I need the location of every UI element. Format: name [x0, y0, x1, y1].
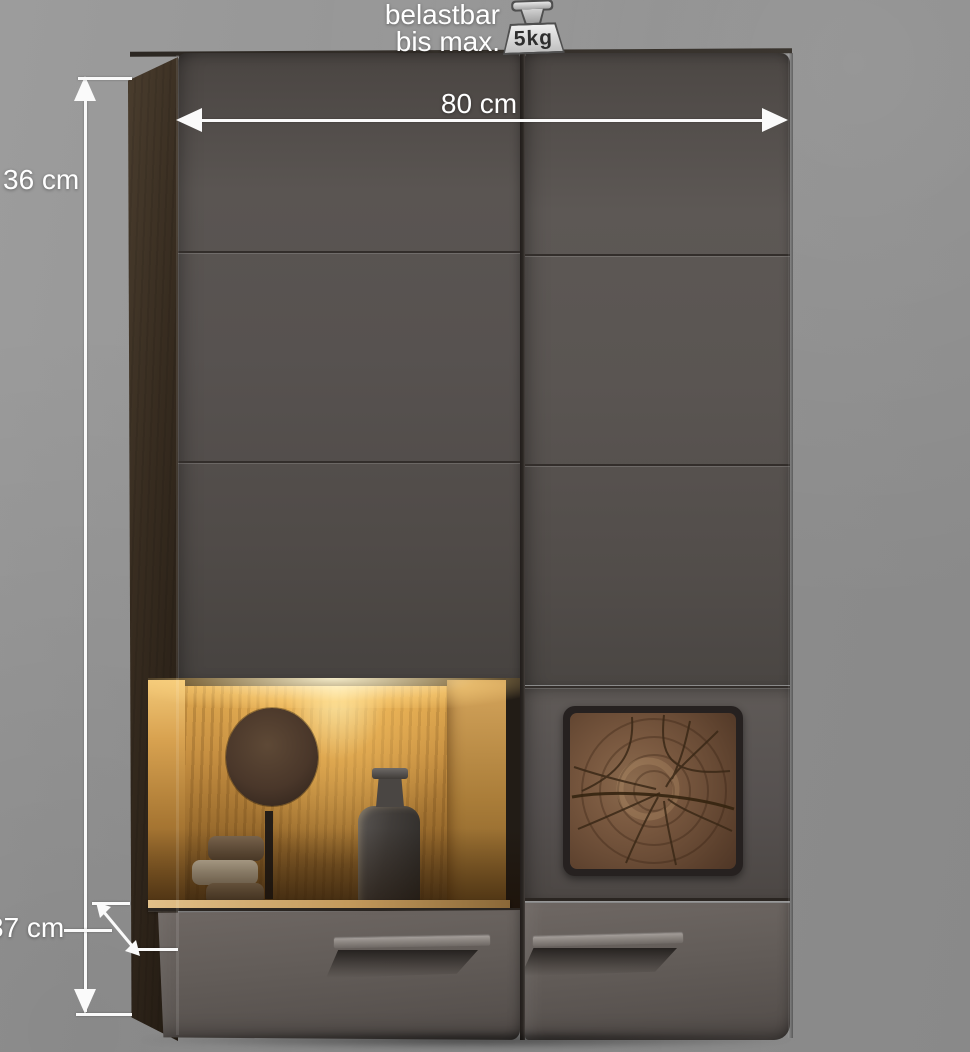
width-dimension-line [194, 119, 772, 122]
depth-dimension-label: 37 cm [0, 914, 64, 942]
tree-ring-panel-frame [563, 706, 743, 876]
tree-ring-icon [570, 713, 736, 869]
load-capacity-line1: belastbar [290, 1, 500, 29]
decor-disc-sculpture [226, 708, 318, 806]
door-seam [525, 686, 790, 689]
drawer-seam [525, 898, 790, 902]
drawer-handle-recess-left [326, 950, 478, 978]
door-upper-left [178, 53, 520, 678]
weight-icon-cap-face [513, 1, 551, 9]
door-seam [525, 464, 790, 467]
weight-icon-body-face: 5kg [504, 24, 563, 53]
depth-diagonal-arrow [88, 898, 148, 958]
decor-bottle-neck [376, 776, 404, 807]
cabinet-right-edge [788, 53, 793, 1038]
height-dimension-line [84, 80, 87, 1012]
width-arrowhead-right [762, 108, 788, 132]
product-image: belastbar bis max. 5kg 80 cm 36 cm 37 cm [0, 0, 970, 1052]
drawer-handle-recess-right [521, 948, 677, 976]
door-gap [520, 53, 525, 1040]
load-capacity-line2: bis max. [290, 28, 500, 56]
height-arrowhead-bottom [74, 989, 96, 1014]
height-tick-bottom [76, 1013, 132, 1016]
cabinet-floor-shadow [140, 1031, 796, 1049]
display-compartment [148, 678, 520, 910]
width-dimension-label: 80 cm [369, 90, 589, 118]
compartment-shadow [148, 828, 520, 910]
height-dimension-label: 36 cm [3, 166, 79, 194]
door-seam [178, 251, 520, 254]
compartment-light-glow [148, 678, 520, 708]
tree-ring-panel [570, 713, 736, 869]
door-upper-right [525, 53, 790, 685]
weight-icon: 5kg [501, 0, 565, 56]
width-arrowhead-left [176, 108, 202, 132]
decor-bottle-cap [372, 768, 408, 779]
door-seam [178, 461, 520, 464]
door-seam [525, 254, 790, 257]
height-tick-top [78, 77, 132, 80]
cabinet-front-left-edge [176, 55, 179, 1035]
weight-value: 5kg [513, 26, 553, 50]
